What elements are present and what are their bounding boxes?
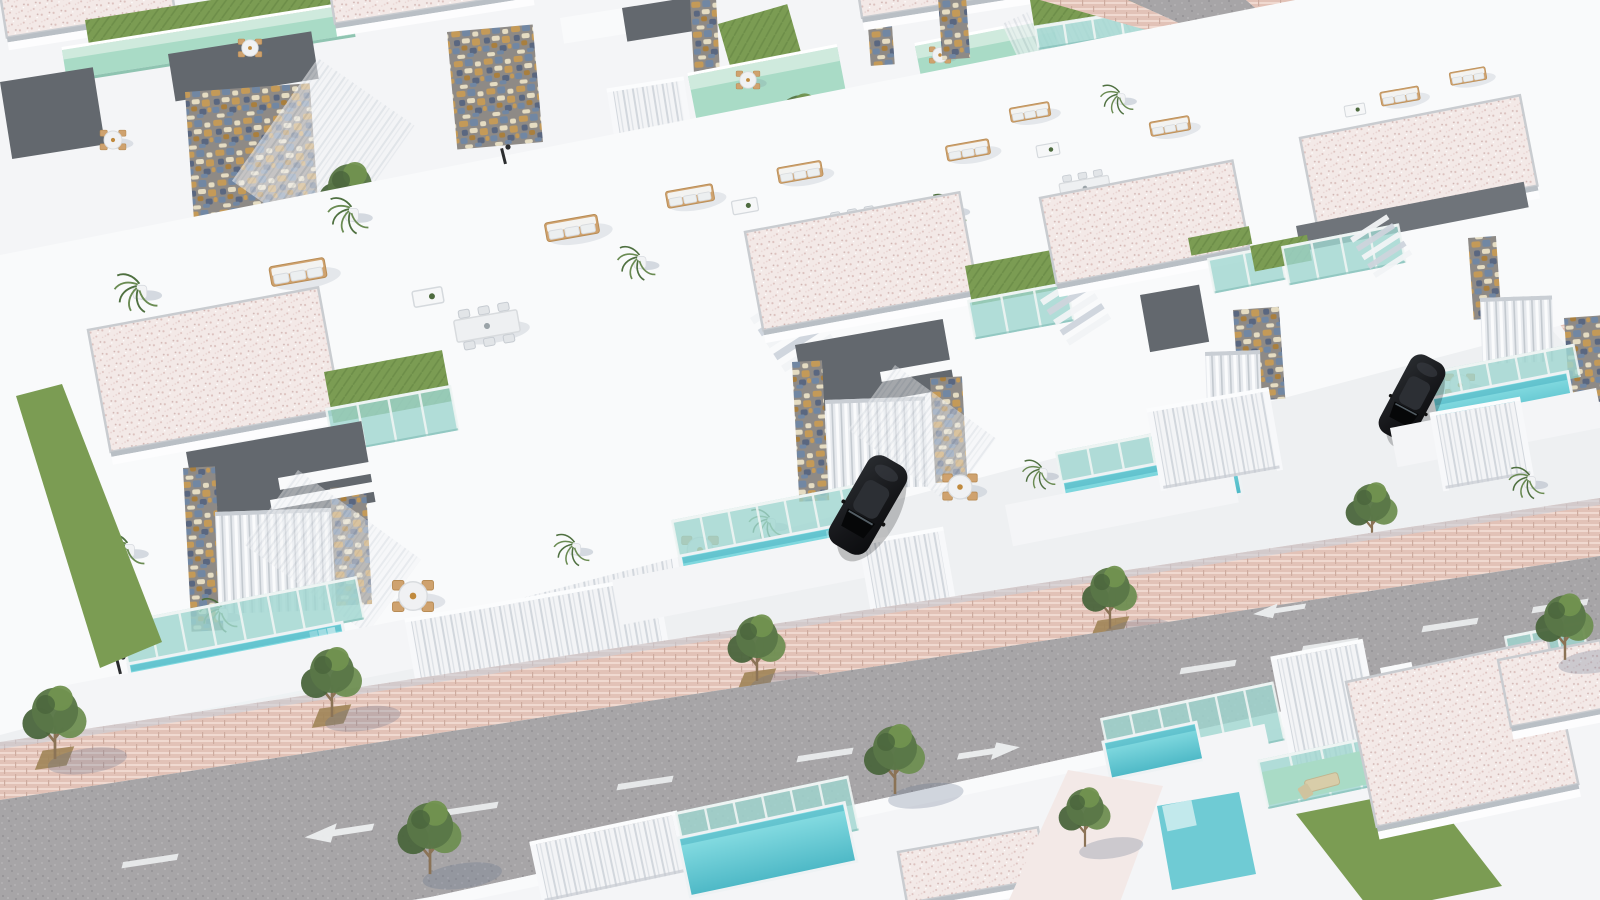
dark-gray-panel [0, 67, 105, 159]
stone-clad-wall [447, 25, 543, 150]
dark-gray-panel [1140, 285, 1209, 353]
stone-clad-wall [938, 0, 970, 60]
aerial-villa-render [0, 0, 1600, 900]
render-canvas [0, 0, 1600, 900]
stone-clad-wall [868, 24, 895, 66]
